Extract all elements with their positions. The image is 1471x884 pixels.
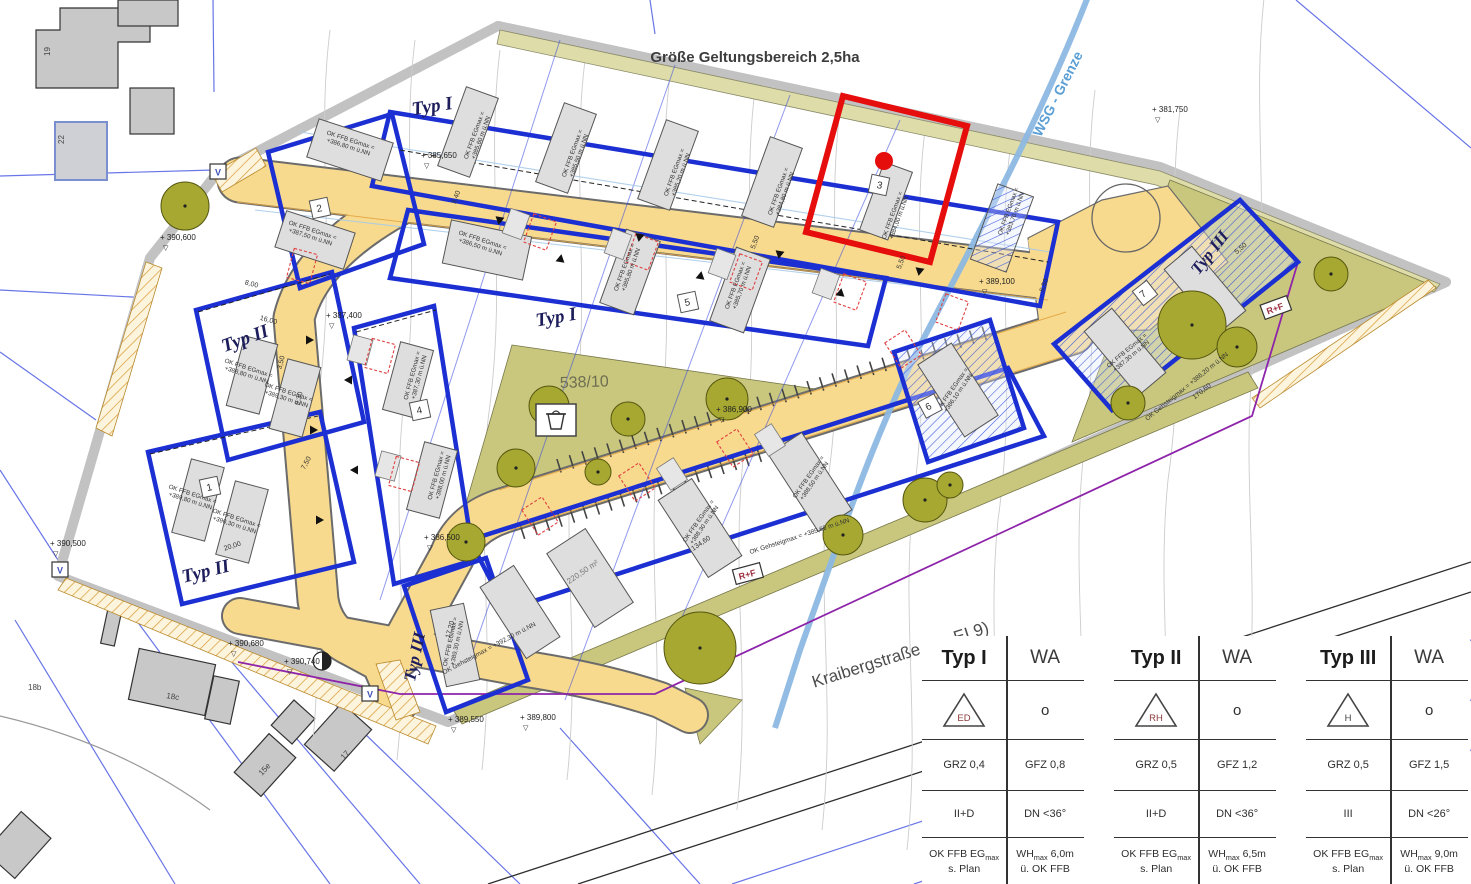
site-plan-page: Größe Geltungsbereich 2,5ha WSG - Grenze… — [0, 0, 1471, 884]
elevation-label: + 390,680 — [228, 639, 264, 648]
elevation-label: + 385,650 — [421, 151, 457, 160]
legend-open-building-symbol: o — [1198, 702, 1276, 719]
legend-storeys-value: II+D — [1114, 808, 1198, 820]
elevation-marker-icon: ▽ — [287, 669, 293, 676]
triangle-symbol-icon: H — [1324, 690, 1372, 730]
elevation-label: + 381,750 — [1152, 105, 1188, 114]
legend-gfz-value: GFZ 0,8 — [1006, 759, 1084, 771]
legend-ffb-note: OK FFB EGmaxs. Plan — [1306, 848, 1390, 875]
legend-column-divider — [1390, 636, 1392, 884]
legend-house-type-symbol: ED — [922, 690, 1006, 730]
legend-grz-value: GRZ 0,4 — [922, 759, 1006, 771]
elevation-marker-icon: ▽ — [523, 725, 529, 732]
elevation-label: + 389,550 — [448, 715, 484, 724]
elevation-label: + 387,400 — [326, 311, 362, 320]
tree-center — [1126, 401, 1129, 404]
legend-ffb-note: OK FFB EGmaxs. Plan — [922, 848, 1006, 875]
legend-table-typ-iii: Typ IIIWAHoGRZ 0,5GFZ 1,5IIIDN <26°OK FF… — [1306, 636, 1468, 884]
elevation-marker-icon: ▽ — [719, 417, 725, 424]
legend-house-type-symbol: H — [1306, 690, 1390, 730]
elevation-marker-icon: ▽ — [427, 545, 433, 552]
legend-open-building-symbol: o — [1006, 702, 1084, 719]
elevation-label: + 390,740 — [284, 657, 320, 666]
legend-use-label: WA — [1390, 647, 1468, 669]
legend-roof-pitch-value: DN <36° — [1198, 808, 1276, 820]
legend-table-typ-i: Typ IWAEDoGRZ 0,4GFZ 0,8II+DDN <36°OK FF… — [922, 636, 1084, 884]
elevation-label: + 386,500 — [424, 533, 460, 542]
elevation-marker-icon: ▽ — [1155, 117, 1161, 124]
legend-type-label: Typ I — [922, 647, 1006, 670]
tree-center — [725, 397, 728, 400]
legend-roof-pitch-value: DN <36° — [1006, 808, 1084, 820]
elevation-marker-icon: ▽ — [424, 163, 430, 170]
waste-container-icon — [536, 404, 576, 436]
legend-roof-pitch-value: DN <26° — [1390, 808, 1468, 820]
elevation-marker-icon: ▽ — [231, 651, 237, 658]
legend-gfz-value: GFZ 1,2 — [1198, 759, 1276, 771]
boundary-badge: V — [57, 566, 63, 576]
selection-dot — [875, 152, 893, 170]
legend-house-type-letter: H — [1345, 713, 1352, 724]
legend-storeys-value: III — [1306, 808, 1390, 820]
elevation-label: + 389,100 — [979, 277, 1015, 286]
tree-center — [1235, 345, 1238, 348]
elevation-marker-icon: ▽ — [982, 289, 988, 296]
legend-storeys-value: II+D — [922, 808, 1006, 820]
legend-house-type-letter: ED — [958, 713, 971, 724]
elevation-label: + 386,900 — [716, 405, 752, 414]
legend-wall-height-note: WHmax 9,0mü. OK FFB — [1390, 848, 1468, 875]
tree-center — [923, 498, 926, 501]
legend-open-building-symbol: o — [1390, 702, 1468, 719]
elevation-label: + 390,500 — [50, 539, 86, 548]
page-title: Größe Geltungsbereich 2,5ha — [650, 49, 860, 66]
legend-house-type-symbol: RH — [1114, 690, 1198, 730]
house-number: 22 — [57, 135, 66, 144]
legend-grz-value: GRZ 0,5 — [1306, 759, 1390, 771]
triangle-symbol-icon: RH — [1132, 690, 1180, 730]
tree-center — [464, 540, 467, 543]
boundary-badge: V — [215, 168, 221, 178]
parcel-538-10-label: 538/10 — [560, 373, 610, 392]
legend-wall-height-note: WHmax 6,0mü. OK FFB — [1006, 848, 1084, 875]
legend-use-label: WA — [1198, 647, 1276, 669]
elevation-marker-icon: ▽ — [329, 323, 335, 330]
tree-center — [948, 483, 951, 486]
boundary-badge: V — [367, 690, 373, 700]
legend-ffb-note: OK FFB EGmaxs. Plan — [1114, 848, 1198, 875]
house-number: 18b — [28, 683, 42, 692]
legend-column-divider — [1006, 636, 1008, 884]
legend-type-label: Typ III — [1306, 647, 1390, 670]
tree-center — [1329, 272, 1332, 275]
elevation-label: + 389,800 — [520, 713, 556, 722]
legend-house-type-letter: RH — [1149, 713, 1163, 724]
elevation-label: + 390,600 — [160, 233, 196, 242]
legend-gfz-value: GFZ 1,5 — [1390, 759, 1468, 771]
legend-grz-value: GRZ 0,5 — [1114, 759, 1198, 771]
legend-table-typ-ii: Typ IIWARHoGRZ 0,5GFZ 1,2II+DDN <36°OK F… — [1114, 636, 1276, 884]
triangle-symbol-icon: ED — [940, 690, 988, 730]
tree-center — [514, 466, 517, 469]
tree-center — [596, 470, 599, 473]
tree-center — [698, 646, 701, 649]
house-number: 19 — [43, 47, 52, 56]
legend-use-label: WA — [1006, 647, 1084, 669]
tree-center — [183, 204, 186, 207]
legend-type-label: Typ II — [1114, 647, 1198, 670]
tree-center — [1190, 323, 1193, 326]
legend: Typ IWAEDoGRZ 0,4GFZ 0,8II+DDN <36°OK FF… — [922, 636, 1470, 884]
tree-center — [841, 533, 844, 536]
tree-center — [626, 417, 629, 420]
wsg-label: WSG - Grenze — [1029, 48, 1086, 139]
elevation-marker-icon: ▽ — [163, 245, 169, 252]
elevation-marker-icon: ▽ — [451, 727, 457, 734]
legend-wall-height-note: WHmax 6,5mü. OK FFB — [1198, 848, 1276, 875]
legend-column-divider — [1198, 636, 1200, 884]
elevation-marker-icon: ▽ — [53, 551, 59, 558]
